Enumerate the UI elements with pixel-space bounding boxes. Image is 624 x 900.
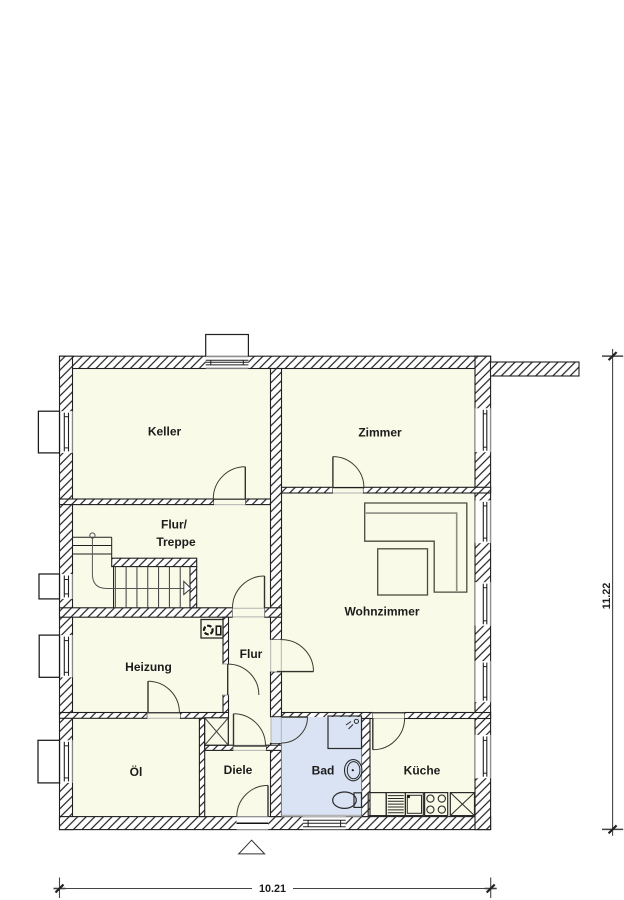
svg-text:Flur/: Flur/	[161, 518, 188, 532]
svg-text:11.22: 11.22	[601, 583, 613, 609]
svg-text:Öl: Öl	[130, 764, 143, 779]
svg-text:Diele: Diele	[224, 763, 253, 777]
svg-text:Küche: Küche	[404, 764, 441, 778]
svg-text:Bad: Bad	[312, 764, 335, 778]
svg-text:Heizung: Heizung	[125, 660, 172, 674]
svg-text:Zimmer: Zimmer	[358, 426, 402, 440]
svg-text:10.21: 10.21	[259, 883, 286, 895]
svg-text:Wohnzimmer: Wohnzimmer	[344, 605, 419, 619]
svg-text:Keller: Keller	[148, 425, 182, 439]
svg-text:Flur: Flur	[240, 647, 263, 661]
svg-text:Treppe: Treppe	[156, 535, 196, 549]
